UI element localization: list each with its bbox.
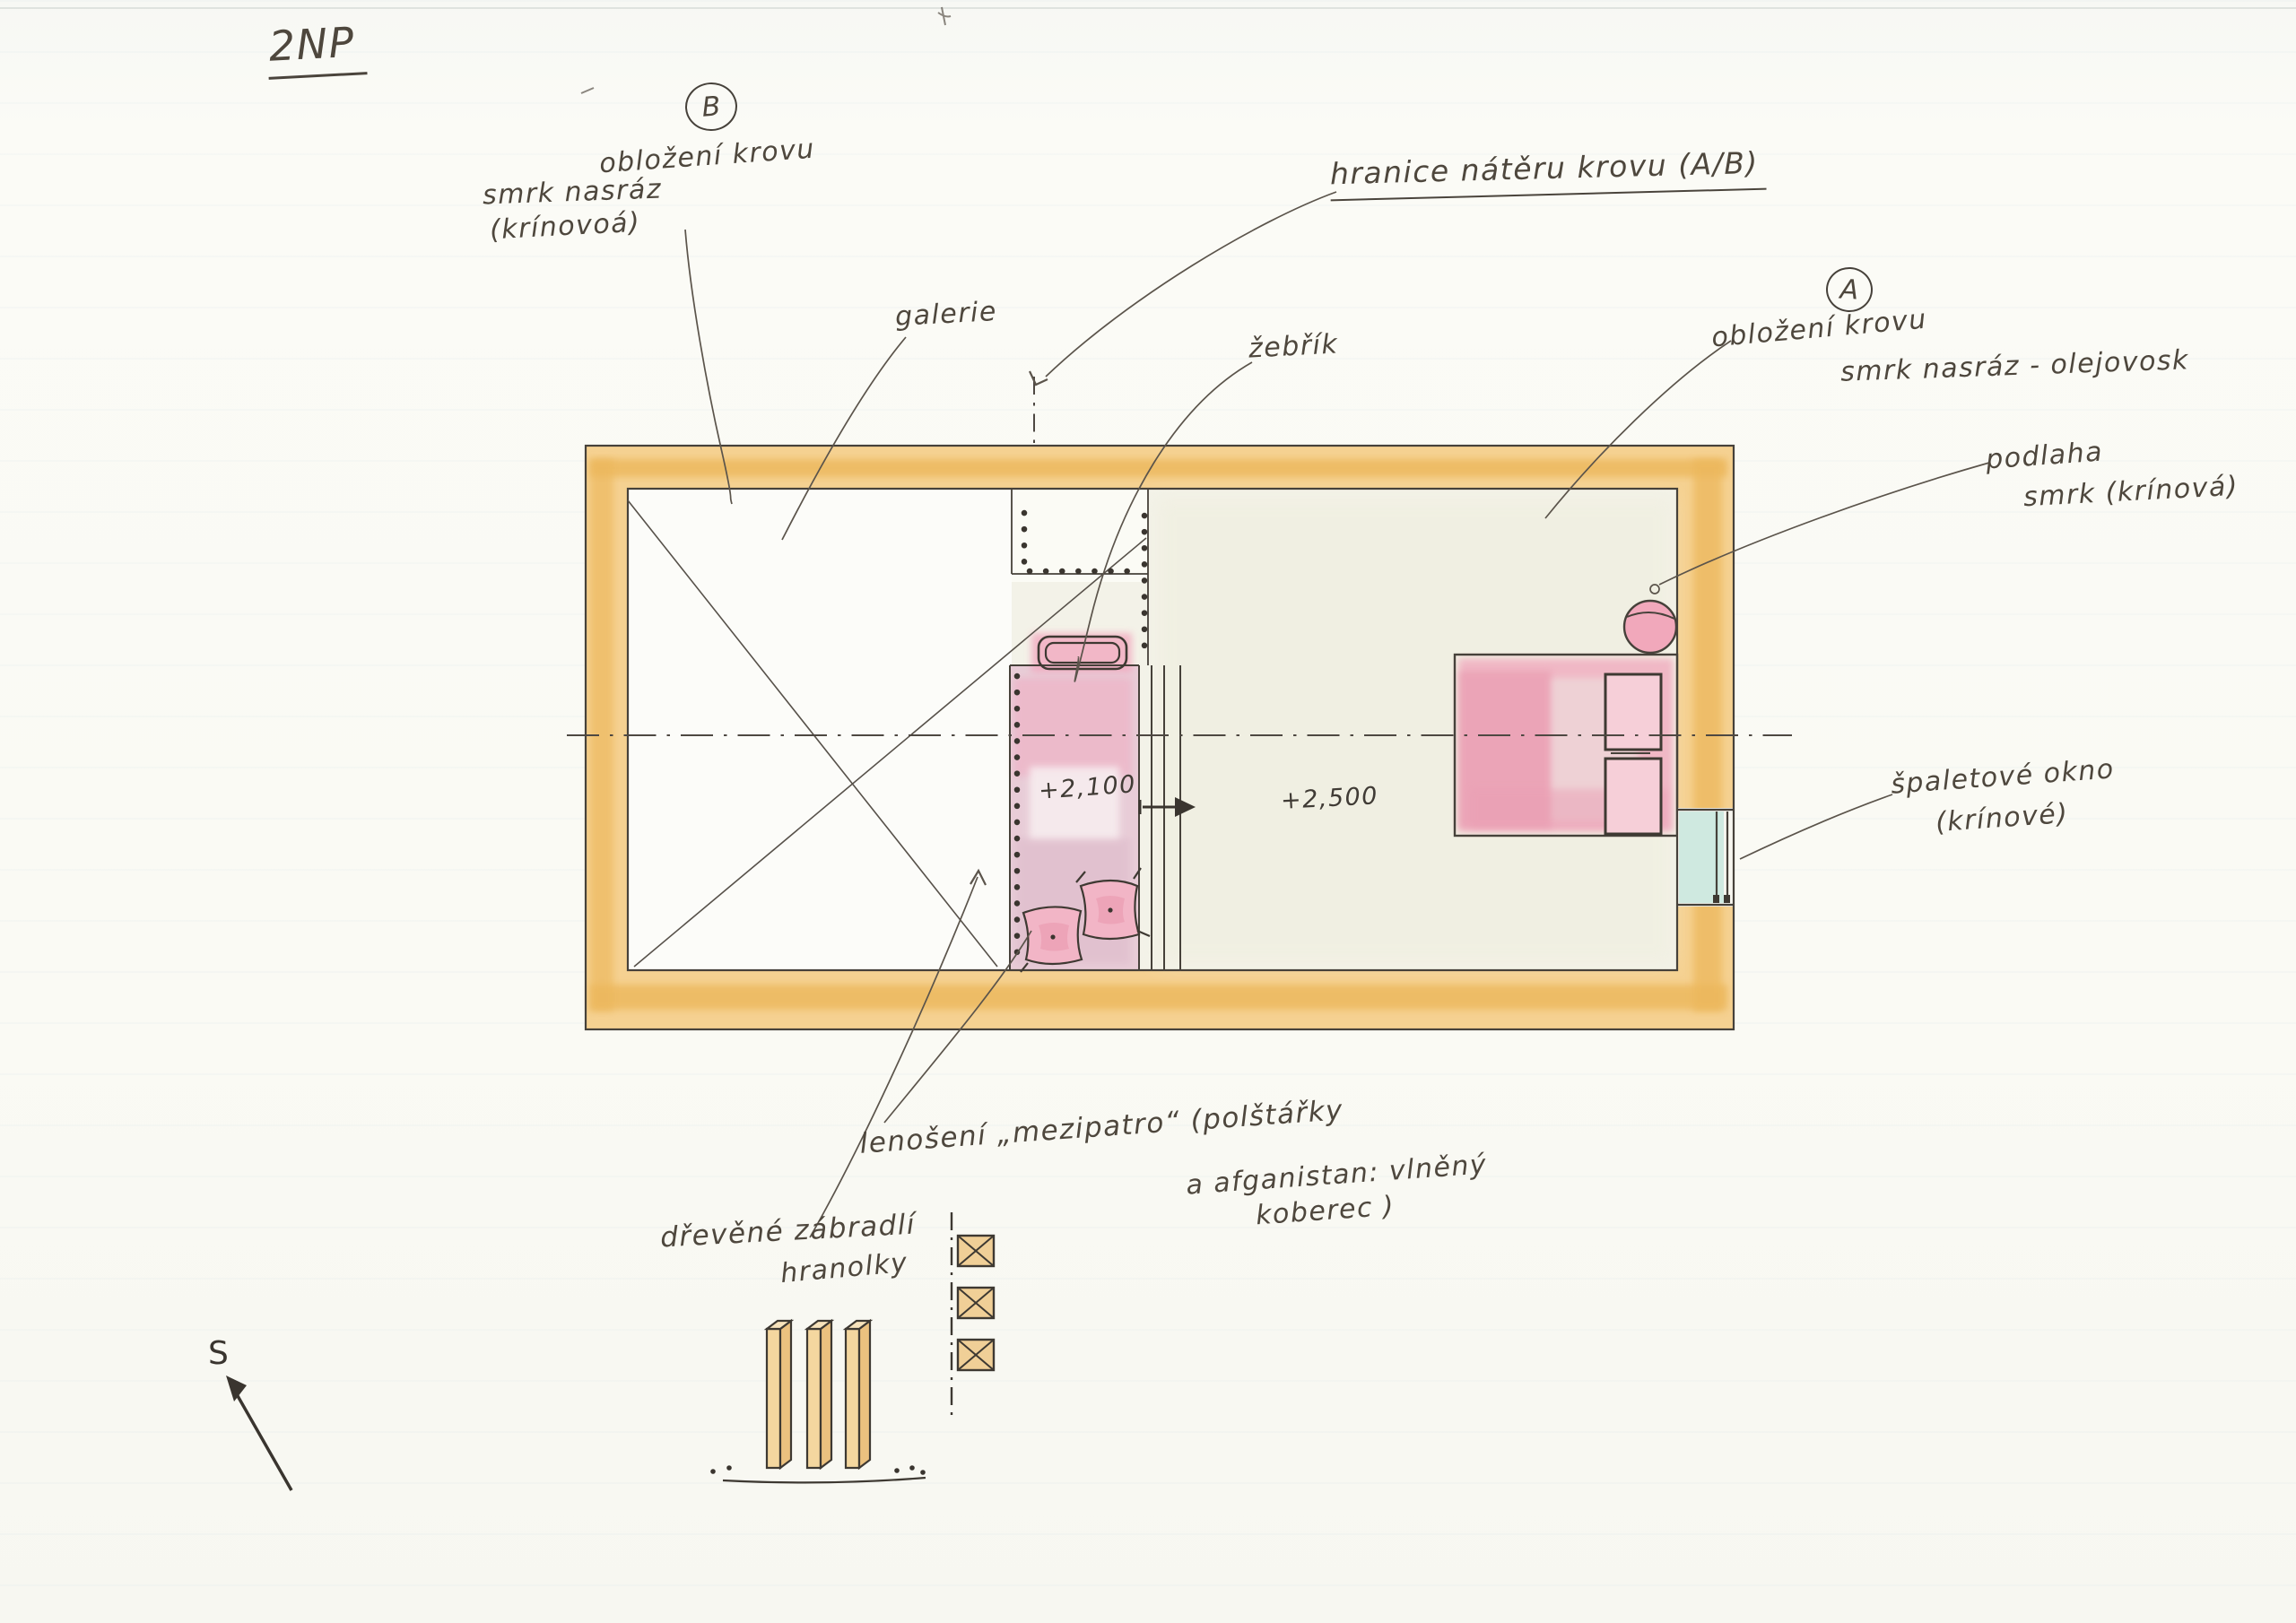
- post-symbol: [958, 1236, 994, 1266]
- label-galerie: galerie: [894, 297, 997, 332]
- label-zebrik: žebřík: [1248, 329, 1339, 363]
- leader-okno: [1740, 794, 1892, 859]
- north-arrow: [226, 1376, 291, 1490]
- window: [1677, 808, 1735, 907]
- scan-marks: [581, 7, 951, 93]
- round-stool: [1624, 601, 1676, 653]
- post-2: [807, 1321, 831, 1468]
- gallery-void: [628, 489, 1012, 970]
- north-label: S: [208, 1336, 230, 1372]
- note-b-line2: smrk nasráz: [482, 175, 662, 211]
- post-1: [767, 1321, 791, 1468]
- railing-post-sketch: [710, 1321, 926, 1482]
- bed-pillow-top: [1605, 674, 1661, 750]
- leader-hranice-arrow: [1030, 371, 1048, 385]
- post-3: [846, 1321, 870, 1468]
- stair-opening: [1012, 489, 1148, 582]
- level-main-room: +2,500: [1280, 783, 1378, 814]
- post-symbol: [958, 1340, 994, 1370]
- scanned-floor-plan-page: 2NP B obložení krovu smrk nasráz (krínov…: [0, 0, 2296, 1623]
- post-plan-symbols: [952, 1212, 994, 1415]
- post-symbol: [958, 1288, 994, 1318]
- page-title: 2NP: [265, 19, 367, 79]
- bed: [1455, 655, 1677, 836]
- ground-line: [723, 1478, 926, 1482]
- bed-pillow-bottom: [1605, 759, 1661, 834]
